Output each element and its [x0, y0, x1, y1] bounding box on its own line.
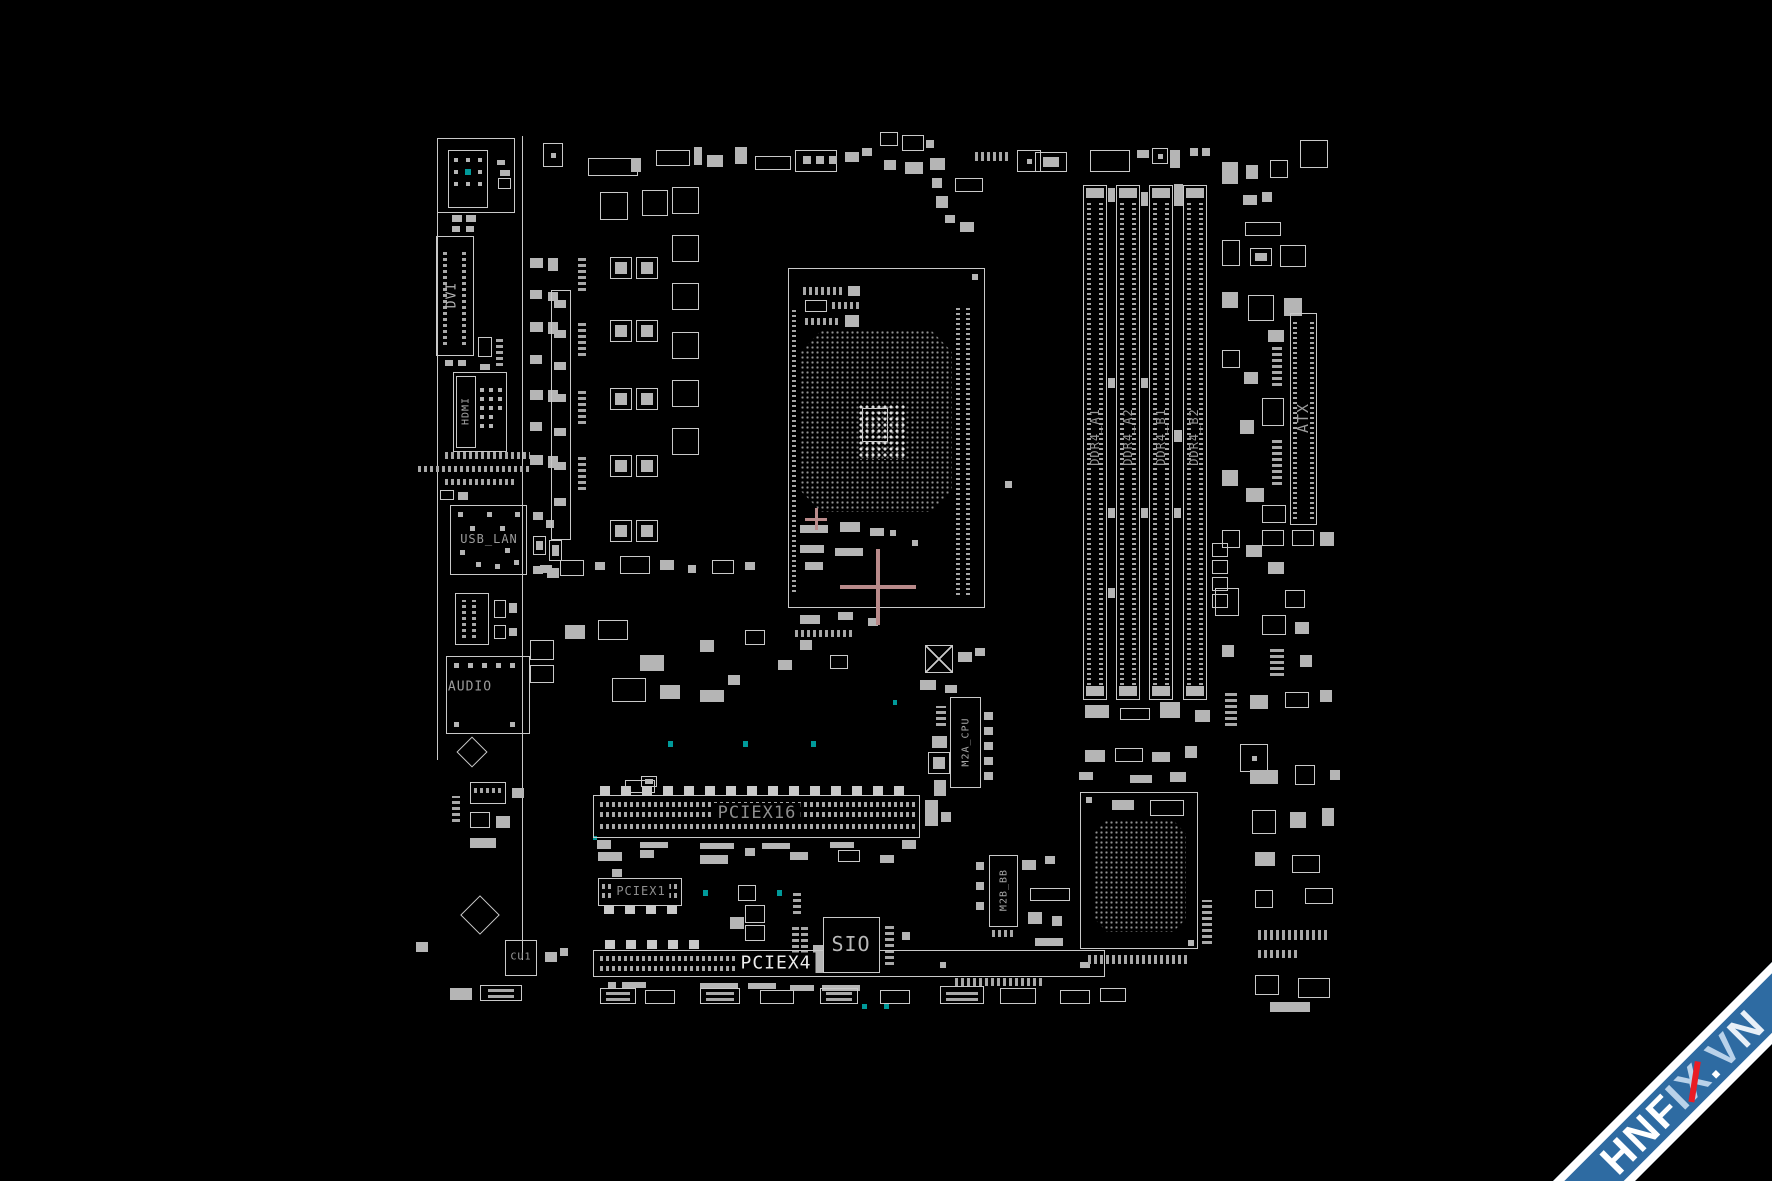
- component-filled: [636, 257, 658, 279]
- component-pad: [498, 397, 502, 401]
- cpu-edge-ticks: [966, 305, 970, 595]
- component-pad: [1195, 710, 1210, 722]
- fiducial-dot: [884, 1004, 889, 1009]
- component-outline: [1115, 748, 1143, 762]
- component-pad: [530, 455, 543, 465]
- component-pad: [496, 663, 501, 668]
- component-pad: [466, 158, 470, 162]
- component-outline: [1300, 140, 1328, 168]
- component-pad: [1246, 488, 1264, 502]
- component-outline: [1222, 350, 1240, 368]
- component-pad: [554, 330, 566, 338]
- component-pad: [728, 675, 740, 685]
- component-pad: [598, 852, 622, 861]
- component-pad: [984, 757, 993, 765]
- component-pad: [748, 983, 776, 989]
- fiducial-dot: [893, 700, 897, 705]
- component-pad: [1079, 772, 1093, 780]
- component-filled: [1250, 248, 1272, 266]
- component-pad: [452, 215, 462, 222]
- component-outline: [1252, 810, 1276, 834]
- component-pad: [480, 415, 484, 419]
- component-pad: [830, 842, 854, 848]
- component-pad: [1185, 746, 1197, 758]
- component-outline: [1245, 222, 1281, 236]
- component-pad: [480, 397, 484, 401]
- label-audio: AUDIO: [448, 680, 492, 695]
- component-pad: [1170, 772, 1186, 782]
- fiducial-dot: [862, 1004, 867, 1009]
- component-outline: [672, 283, 699, 310]
- component-pad: [1085, 705, 1109, 718]
- component-pad: [1085, 750, 1105, 762]
- component-outline: [672, 380, 699, 407]
- component-outline: [738, 885, 756, 901]
- component-outline: [672, 235, 699, 262]
- component-dot: [1152, 148, 1168, 164]
- pad-column: [936, 706, 946, 726]
- component-pad: [489, 388, 493, 392]
- component-pad: [514, 560, 519, 565]
- component-pad: [1240, 420, 1254, 434]
- pad-row: [992, 930, 1016, 937]
- component-outline: [1060, 990, 1090, 1004]
- component-pad: [1108, 188, 1115, 202]
- component-pad: [920, 680, 936, 690]
- pad-row: [955, 978, 1043, 986]
- component-outline: [1285, 590, 1305, 608]
- component-pad: [829, 156, 837, 164]
- pad-column: [1202, 900, 1212, 944]
- component-pad: [458, 512, 463, 517]
- label-usb-lan: USB_LAN: [460, 532, 518, 546]
- pad-column: [706, 991, 734, 1001]
- component-pad: [1130, 775, 1152, 783]
- component-pad: [454, 182, 458, 186]
- component-pad: [862, 148, 872, 156]
- component-pad: [1290, 812, 1306, 828]
- component-pad: [1320, 690, 1332, 702]
- component-outline: [530, 665, 554, 683]
- fiducial-dot: [703, 890, 708, 896]
- component-pad: [530, 355, 542, 364]
- component-pad: [1295, 622, 1309, 634]
- component-pad: [554, 462, 566, 470]
- component-outline: [620, 556, 650, 574]
- component-outline: [1280, 245, 1306, 267]
- component-pad: [554, 498, 566, 506]
- pad-column: [488, 988, 514, 998]
- component-pad: [1141, 508, 1148, 518]
- alignment-cross: [876, 549, 880, 625]
- pad-column: [462, 600, 466, 638]
- watermark-red-slash: [1688, 1062, 1700, 1103]
- component-outline: [755, 156, 791, 170]
- pciex1-teeth: [604, 906, 680, 914]
- component-pad: [498, 388, 502, 392]
- component-pad: [800, 640, 812, 650]
- dimm-slot-b2-cap-top: [1186, 188, 1204, 198]
- component-pad: [925, 800, 938, 826]
- component-pad: [466, 182, 470, 186]
- component-pad: [1222, 292, 1238, 308]
- component-pad: [460, 550, 465, 555]
- component-pad: [530, 258, 543, 268]
- component-outline: [1120, 708, 1150, 720]
- diamond-marker: [460, 895, 500, 935]
- pad-row: [418, 466, 530, 472]
- component-outline: [530, 640, 554, 660]
- component-pad: [790, 852, 808, 860]
- component-outline: [600, 192, 628, 220]
- component-pad: [530, 390, 543, 400]
- pad-column: [578, 390, 586, 424]
- component-pad: [1322, 808, 1334, 826]
- label-ddr4-b1: DDR4_B1: [1154, 408, 1168, 466]
- pad-column: [946, 990, 978, 1001]
- component-pad: [1222, 470, 1238, 486]
- component-pad: [500, 526, 505, 531]
- component-pad: [800, 615, 820, 624]
- component-outline: [1262, 530, 1284, 546]
- component-pad: [489, 406, 493, 410]
- component-filled: [610, 520, 632, 542]
- component-outline: [1212, 560, 1228, 574]
- component-outline: [656, 150, 690, 166]
- component-pad: [454, 170, 458, 174]
- component-pad: [1246, 545, 1262, 557]
- component-pad: [845, 152, 859, 162]
- component-outline: [1270, 160, 1288, 178]
- component-pad: [700, 640, 714, 652]
- component-outline: [1215, 588, 1239, 616]
- component-pad: [884, 160, 896, 170]
- component-pad: [545, 952, 557, 962]
- component-pad: [945, 215, 955, 223]
- fiducial-dot: [777, 890, 782, 896]
- component-pad: [707, 155, 723, 167]
- component-pad: [941, 812, 951, 822]
- component-outline: [478, 337, 492, 357]
- component-pad: [565, 625, 585, 639]
- component-pad: [480, 364, 490, 370]
- component-pad: [612, 869, 622, 877]
- component-pad: [452, 226, 460, 232]
- pad-row: [975, 152, 1009, 161]
- component-pad: [458, 492, 468, 500]
- component-pad: [487, 512, 492, 517]
- component-pad: [1250, 695, 1268, 709]
- component-outline: [642, 190, 668, 216]
- label-pciex16: PCIEX16: [714, 803, 801, 823]
- component-pad: [554, 300, 566, 308]
- component-pad: [960, 222, 974, 232]
- component-pad: [778, 660, 792, 670]
- component-filled: [610, 320, 632, 342]
- label-hdmi: HDMI: [461, 397, 472, 425]
- component-pad: [984, 742, 993, 750]
- pad-column: [606, 991, 630, 1001]
- component-outline: [672, 332, 699, 359]
- pad-column: [793, 890, 801, 914]
- component-pad: [700, 855, 728, 864]
- component-pad: [548, 258, 558, 271]
- component-pad: [512, 788, 524, 798]
- component-outline: [672, 428, 699, 455]
- cpu-edge-ticks: [956, 305, 960, 595]
- component-pad: [936, 196, 948, 208]
- chipset-bga-grid: [1094, 820, 1186, 932]
- component-pad: [902, 932, 910, 940]
- component-pad: [976, 902, 984, 910]
- component-pad: [554, 428, 566, 436]
- component-outline: [880, 132, 898, 146]
- component-pad: [482, 663, 487, 668]
- component-outline: [760, 990, 794, 1004]
- pad-row: [1258, 930, 1328, 940]
- pad-column: [1225, 690, 1237, 726]
- component-pad: [838, 612, 853, 620]
- pad-column: [1272, 440, 1282, 485]
- component-pad: [745, 562, 755, 570]
- label-cu1: CU1: [510, 952, 531, 963]
- component-pad: [1141, 192, 1148, 206]
- fiducial-dot: [668, 741, 673, 747]
- pad-column: [472, 600, 476, 638]
- component-pad: [694, 147, 702, 165]
- component-outline: [1222, 240, 1240, 266]
- pad-row: [474, 788, 502, 793]
- component-pad: [478, 182, 482, 186]
- component-pad: [984, 772, 993, 780]
- component-pad: [1320, 532, 1334, 546]
- component-outline: [1292, 530, 1314, 546]
- component-outline: [672, 187, 699, 214]
- component-pad: [1137, 150, 1149, 158]
- component-pad: [640, 655, 664, 671]
- component-outline: [1292, 855, 1320, 873]
- pad-row: [795, 630, 855, 637]
- component-pad: [976, 862, 984, 870]
- component-pad: [1222, 645, 1234, 657]
- component-pad: [480, 406, 484, 410]
- component-pad: [530, 290, 542, 299]
- component-outline: [645, 990, 675, 1004]
- component-pad: [1202, 148, 1210, 156]
- component-filled: [636, 388, 658, 410]
- label-atx: ATX: [1294, 403, 1312, 433]
- component-pad: [454, 722, 459, 727]
- component-pad: [595, 562, 605, 570]
- dimm-slot-b1-cap-bottom: [1152, 686, 1170, 696]
- component-x-mark: [925, 645, 953, 673]
- component-pad: [984, 727, 993, 735]
- component-pad: [700, 843, 734, 849]
- component-pad: [510, 663, 515, 668]
- fiducial-dot: [811, 741, 816, 747]
- pad-column: [462, 250, 466, 345]
- component-pad: [1108, 378, 1115, 388]
- dimm-slot-a2-cap-top: [1119, 188, 1137, 198]
- component-pad: [640, 850, 654, 858]
- component-outline: [1000, 988, 1036, 1004]
- pciex16-pad-row: [600, 824, 915, 829]
- component-pad: [540, 565, 552, 573]
- boardview-canvas[interactable]: HNFIX.VN HNFIX.VN DVIHDMIUSB_LANAUDIOCU1…: [0, 0, 1772, 1181]
- component-outline: [598, 620, 628, 640]
- component-outline: [712, 560, 734, 574]
- component-pad: [958, 652, 972, 662]
- label-m2a-cpu: M2A_CPU: [961, 717, 972, 766]
- component-pad: [530, 422, 542, 431]
- component-pad: [1174, 430, 1182, 442]
- component-pad: [816, 156, 824, 164]
- fiducial-dot: [465, 169, 471, 175]
- component-pad: [1270, 1002, 1310, 1012]
- cpu-center-outline: [862, 408, 888, 442]
- component-filled: [928, 752, 950, 774]
- component-pad: [454, 663, 459, 668]
- component-pad: [510, 722, 515, 727]
- label-pciex1: PCIEX1: [612, 884, 669, 898]
- component-pad: [902, 840, 916, 849]
- component-pad: [905, 162, 923, 174]
- watermark-banner: HNFIX.VN: [1472, 881, 1772, 1181]
- pad-column: [578, 456, 586, 490]
- component-pad: [466, 226, 474, 232]
- component-pad: [480, 388, 484, 392]
- component-pad: [934, 780, 946, 796]
- component-pad: [1244, 372, 1258, 384]
- component-pad: [498, 406, 502, 410]
- label-ddr4-a1: DDR4_A1: [1088, 408, 1102, 466]
- component-pad: [1246, 165, 1258, 179]
- component-pad: [930, 158, 945, 170]
- watermark-stripe: HNFIX.VN: [1486, 895, 1772, 1181]
- component-outline: [745, 630, 765, 645]
- component-pad: [1330, 770, 1340, 780]
- component-pad: [762, 843, 790, 849]
- component-pad: [976, 882, 984, 890]
- component-outline: [1285, 692, 1309, 708]
- component-pad: [509, 628, 517, 636]
- component-pad: [468, 663, 473, 668]
- component-pad: [745, 848, 755, 856]
- label-ddr4-b2: DDR4_B2: [1187, 408, 1201, 466]
- component-pad: [1108, 588, 1115, 598]
- component-pad: [478, 158, 482, 162]
- pad-column: [1272, 346, 1282, 386]
- component-pad: [1052, 916, 1062, 926]
- component-pad: [730, 917, 744, 929]
- dimm-slot-a1-cap-bottom: [1086, 686, 1104, 696]
- component-outline: [498, 178, 511, 189]
- component-pad: [454, 158, 458, 162]
- component-outline: [1255, 890, 1273, 908]
- cpu-edge-ticks: [792, 308, 796, 592]
- component-outline: [1262, 615, 1286, 635]
- component-outline: [830, 655, 848, 669]
- dimm-slot-b1-cap-top: [1152, 188, 1170, 198]
- component-pad: [660, 560, 674, 570]
- component-outline: [1090, 150, 1130, 172]
- component-dot: [1240, 744, 1268, 772]
- component-pad: [932, 178, 942, 188]
- component-outline: [470, 782, 506, 804]
- component-pad: [640, 842, 668, 848]
- component-filled: [549, 540, 562, 561]
- component-outline: [440, 490, 454, 500]
- component-outline: [1262, 505, 1286, 523]
- dimm-slot-a1-cap-top: [1086, 188, 1104, 198]
- component-pad: [505, 548, 510, 553]
- label-pciex4: PCIEX4: [736, 953, 815, 974]
- component-outline: [470, 812, 490, 828]
- component-pad: [1160, 702, 1180, 718]
- component-filled: [533, 536, 546, 555]
- component-pad: [1300, 655, 1312, 667]
- component-pad: [470, 838, 496, 848]
- pad-column: [452, 796, 460, 822]
- pad-row: [1258, 950, 1298, 958]
- pad-column: [1270, 648, 1284, 676]
- component-outline: [494, 625, 506, 639]
- component-pad: [1108, 508, 1115, 518]
- component-pad: [735, 147, 747, 164]
- component-pad: [1222, 162, 1238, 184]
- component-outline: [955, 178, 983, 192]
- component-pad: [1190, 148, 1198, 156]
- component-pad: [1035, 938, 1063, 946]
- component-pad: [509, 603, 517, 613]
- label-dvi: DVI: [445, 282, 460, 308]
- pad-row: [445, 452, 530, 459]
- component-pad: [489, 424, 493, 428]
- component-filled: [636, 455, 658, 477]
- component-pad: [688, 565, 696, 573]
- component-outline: [838, 850, 860, 862]
- label-ddr4-a2: DDR4_A2: [1121, 408, 1135, 466]
- component-outline: [1248, 295, 1274, 321]
- component-outline: [1212, 543, 1228, 557]
- component-filled: [610, 455, 632, 477]
- component-pad: [597, 840, 611, 849]
- component-pad: [533, 512, 543, 520]
- component-outline: [1262, 398, 1284, 426]
- component-pad: [1005, 481, 1012, 488]
- label-sio: SIO: [831, 932, 870, 956]
- component-pad: [1174, 508, 1181, 518]
- component-filled: [636, 520, 658, 542]
- pad-column: [578, 320, 586, 356]
- component-dot: [543, 143, 563, 167]
- component-pad: [1250, 770, 1278, 784]
- component-pad: [554, 394, 566, 402]
- cpu-corner-pad: [972, 274, 978, 280]
- component-pad: [1268, 330, 1284, 342]
- alignment-cross: [815, 508, 818, 530]
- component-outline: [1100, 988, 1126, 1002]
- component-outline: [612, 678, 646, 702]
- component-pad: [478, 170, 482, 174]
- fiducial-dot: [743, 741, 748, 747]
- component-pad: [1255, 852, 1275, 866]
- component-outline: [745, 905, 765, 923]
- component-pad: [500, 170, 510, 176]
- component-pad: [1174, 184, 1183, 206]
- pad-row: [445, 479, 515, 485]
- component-pad: [495, 564, 500, 569]
